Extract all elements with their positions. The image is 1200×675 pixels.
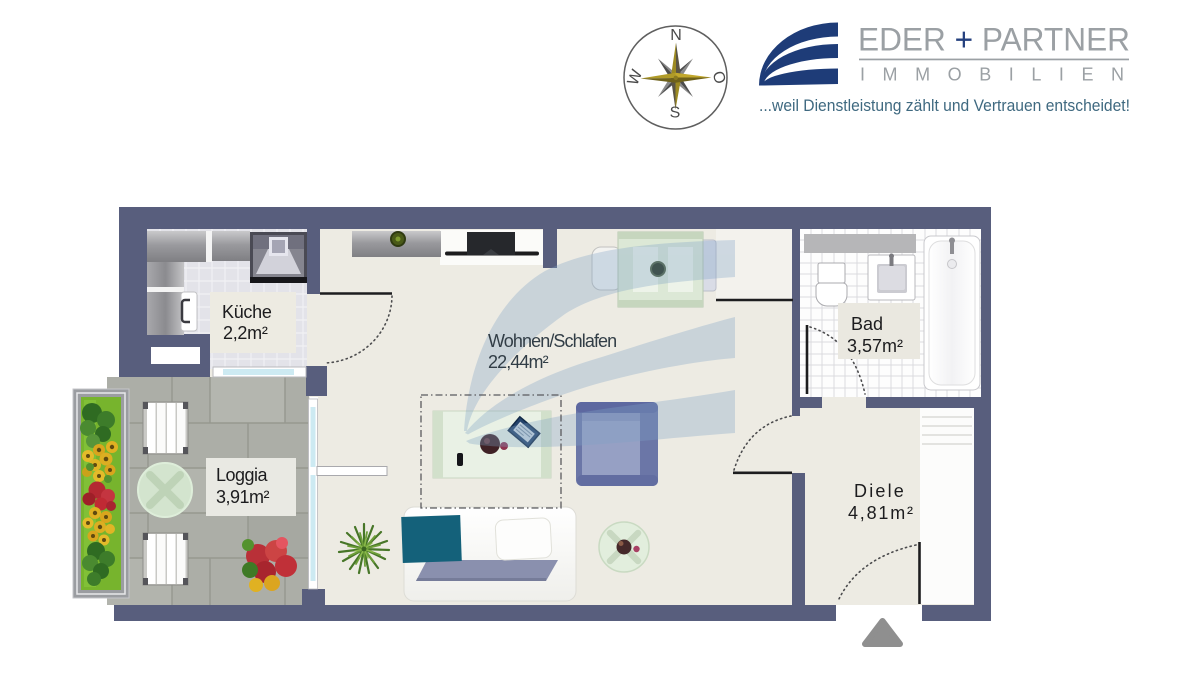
svg-text:Loggia: Loggia bbox=[216, 465, 269, 485]
svg-text:Diele: Diele bbox=[854, 481, 906, 501]
svg-text:S: S bbox=[670, 105, 681, 122]
svg-text:IMMOBILIEN: IMMOBILIEN bbox=[860, 65, 1124, 85]
svg-text:N: N bbox=[670, 27, 682, 44]
svg-text:Küche: Küche bbox=[222, 302, 272, 322]
svg-text:3,57m²: 3,57m² bbox=[847, 336, 903, 356]
svg-text:3,91m²: 3,91m² bbox=[216, 487, 270, 507]
svg-text:2,2m²: 2,2m² bbox=[223, 323, 268, 343]
svg-text:22,44m²: 22,44m² bbox=[488, 352, 549, 372]
svg-text:...weil Dienstleistung zählt u: ...weil Dienstleistung zählt und Vertrau… bbox=[759, 97, 1130, 115]
svg-text:4,81m²: 4,81m² bbox=[848, 503, 915, 523]
svg-text:EDER + PARTNER: EDER + PARTNER bbox=[858, 22, 1130, 58]
svg-text:Wohnen/Schlafen: Wohnen/Schlafen bbox=[488, 331, 616, 351]
svg-text:Bad: Bad bbox=[851, 314, 883, 334]
